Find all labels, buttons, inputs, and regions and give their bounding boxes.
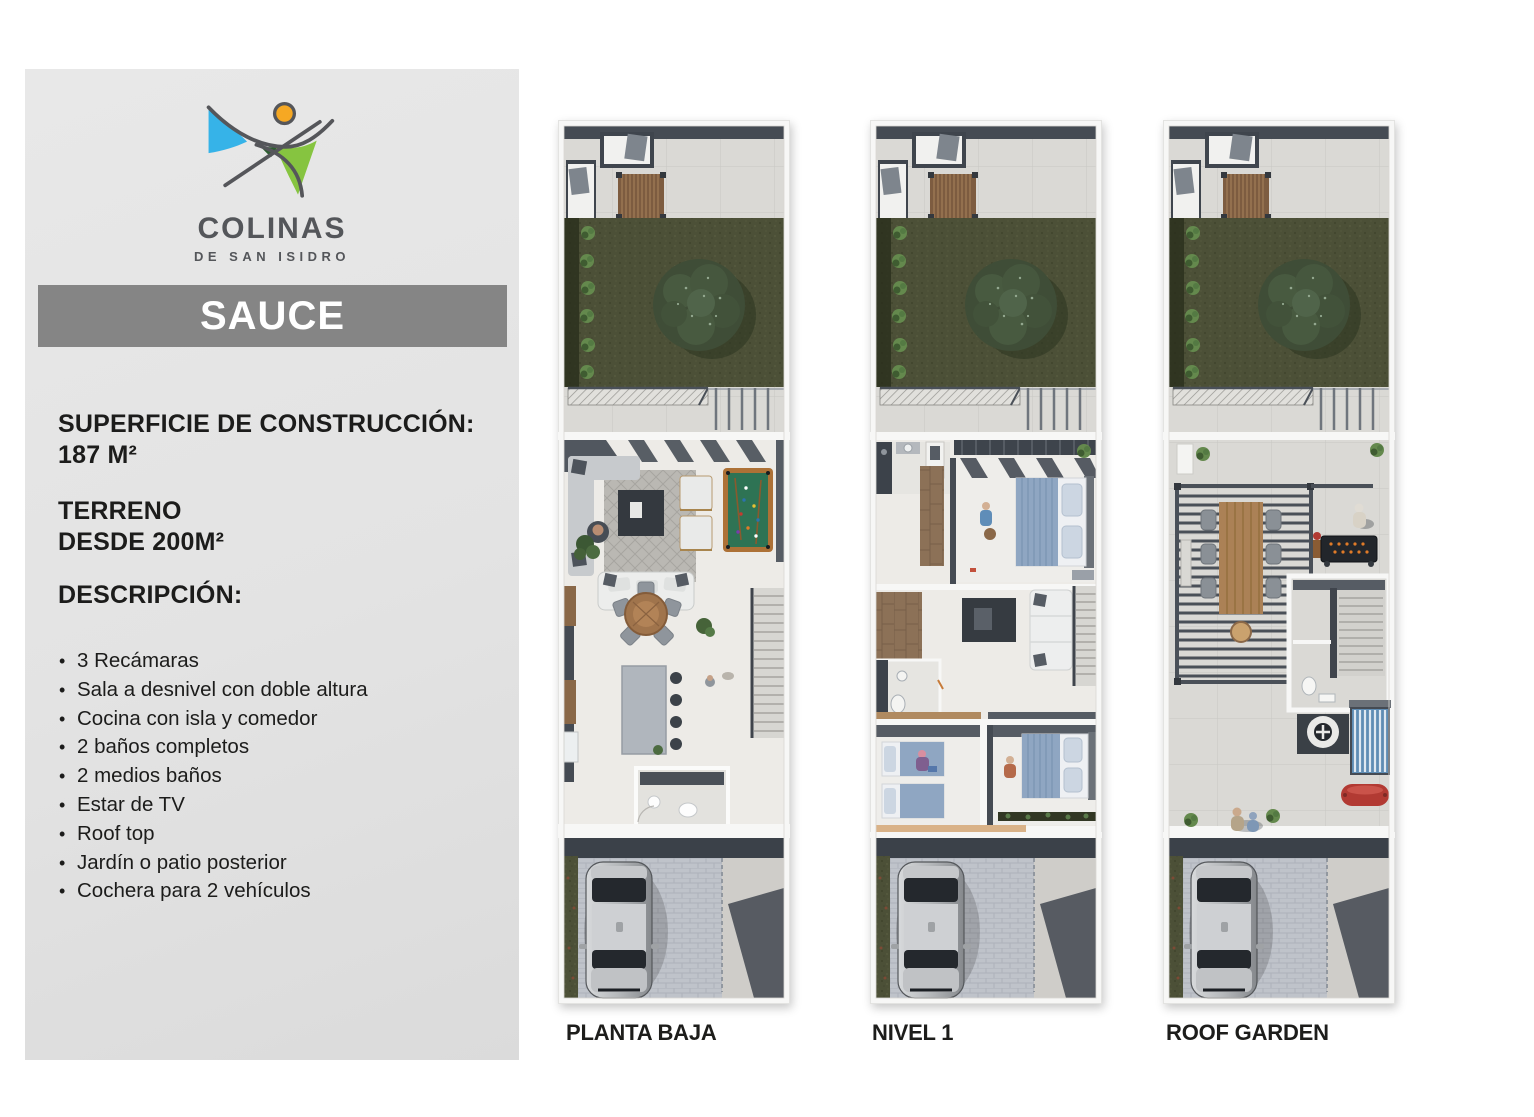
planta-baja-render — [558, 120, 790, 1004]
construction-spec: SUPERFICIE DE CONSTRUCCIÓN: 187 M² — [58, 409, 479, 471]
feature-item: 3 Recámaras — [58, 647, 479, 676]
land-label: TERRENO — [58, 496, 479, 527]
construction-value: 187 M² — [58, 440, 479, 471]
floor-plan-roof-garden — [1163, 120, 1395, 1004]
description-heading: DESCRIPCIÓN: — [58, 580, 479, 611]
plan-label-planta-baja: PLANTA BAJA — [566, 1020, 717, 1046]
feature-item: Sala a desnivel con doble altura — [58, 676, 479, 705]
land-value: DESDE 200M² — [58, 527, 479, 558]
roof-garden-render — [1163, 120, 1395, 1004]
feature-item: 2 baños completos — [58, 733, 479, 762]
land-spec: TERRENO DESDE 200M² — [58, 496, 479, 558]
feature-item: Roof top — [58, 820, 479, 849]
colinas-hills-logo-icon — [194, 99, 350, 203]
plan-label-nivel-1: NIVEL 1 — [872, 1020, 953, 1046]
plan-label-roof-garden: ROOF GARDEN — [1166, 1020, 1329, 1046]
feature-list: 3 Recámaras Sala a desnivel con doble al… — [58, 647, 479, 906]
feature-item: Estar de TV — [58, 791, 479, 820]
brochure-page: COLINAS DE SAN ISIDRO SAUCE SUPERFICIE D… — [0, 0, 1534, 1117]
model-title-bar: SAUCE — [38, 285, 507, 347]
brand-name: COLINAS — [25, 212, 519, 246]
feature-item: Cochera para 2 vehículos — [58, 877, 479, 906]
brand-subtitle: DE SAN ISIDRO — [25, 249, 519, 264]
info-block: SUPERFICIE DE CONSTRUCCIÓN: 187 M² TERRE… — [25, 347, 519, 906]
feature-item: Cocina con isla y comedor — [58, 705, 479, 734]
feature-item: Jardín o patio posterior — [58, 849, 479, 878]
brand-logo — [25, 69, 519, 208]
construction-label: SUPERFICIE DE CONSTRUCCIÓN: — [58, 409, 479, 440]
nivel-1-render — [870, 120, 1102, 1004]
floor-plan-nivel-1 — [870, 120, 1102, 1004]
feature-item: 2 medios baños — [58, 762, 479, 791]
floor-plan-planta-baja — [558, 120, 790, 1004]
sidebar-panel: COLINAS DE SAN ISIDRO SAUCE SUPERFICIE D… — [25, 69, 519, 1060]
model-title: SAUCE — [200, 294, 345, 339]
